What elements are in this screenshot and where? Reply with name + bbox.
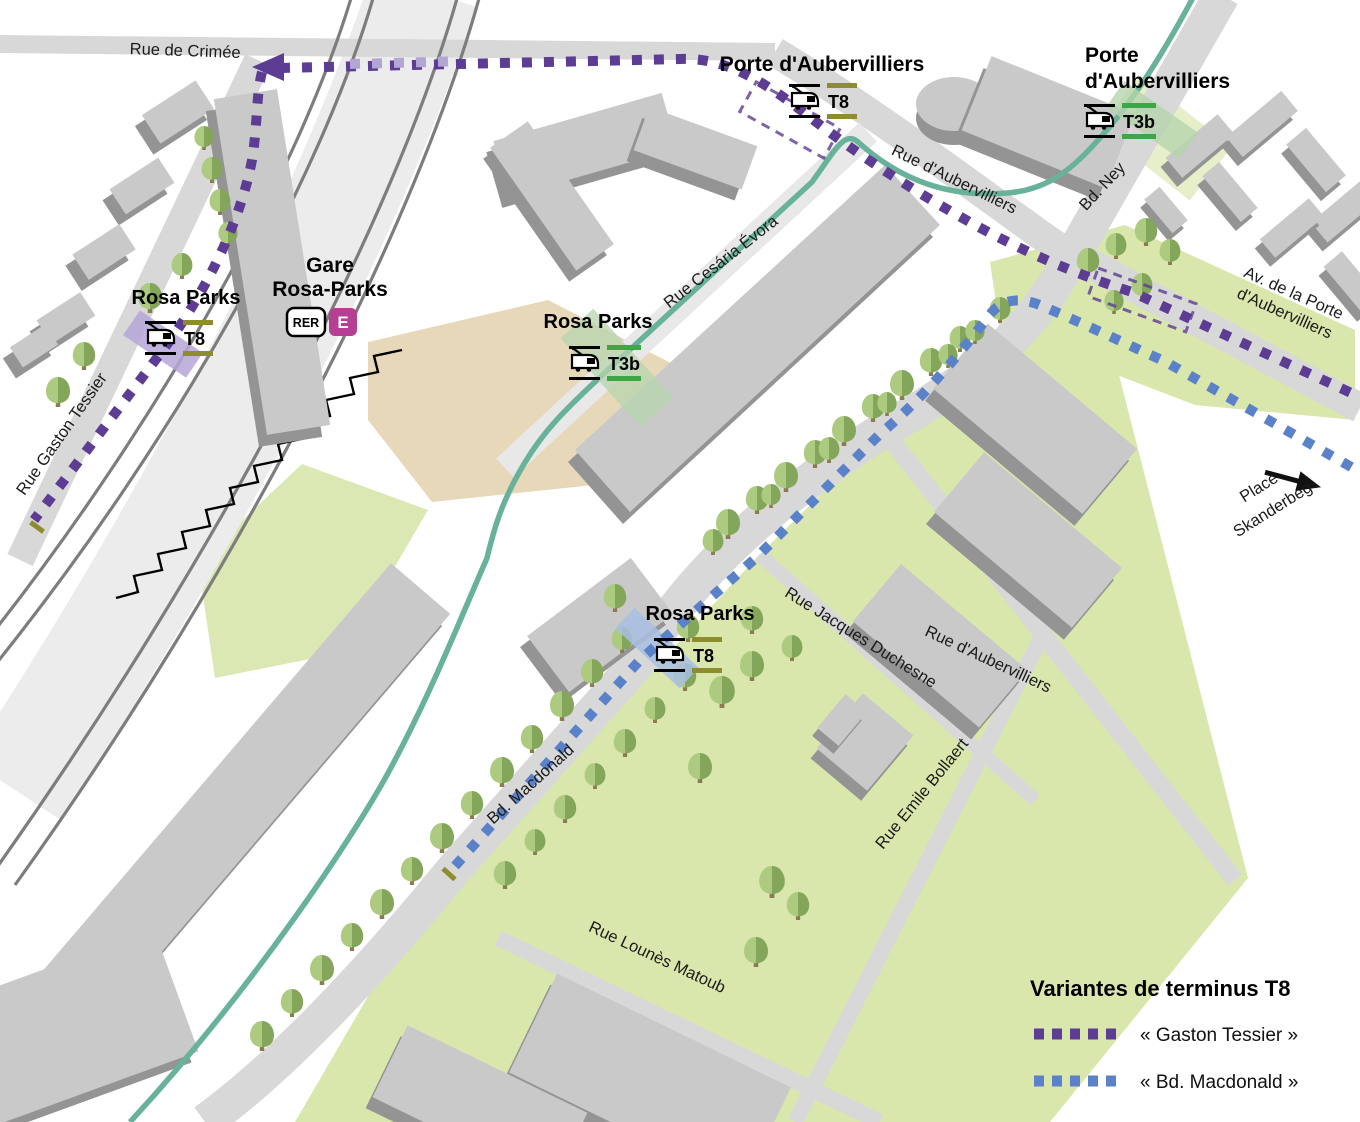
station-label-rosa-parks-t3b: Rosa Parks	[544, 311, 653, 333]
legend-title: Variantes de terminus T8	[1030, 976, 1290, 1001]
t8-line-bar	[183, 320, 213, 325]
station-label-rosa-parks-tessier: Rosa Parks	[132, 287, 241, 309]
t8-badge: T8	[828, 92, 849, 112]
t3b-badge: T3b	[608, 354, 640, 374]
legend-label-bd-macdonald: « Bd. Macdonald »	[1140, 1072, 1298, 1093]
porte-label-line2: d'Aubervilliers	[1085, 70, 1230, 93]
t8-line-bar	[183, 351, 213, 356]
t3b-badge: T3b	[1123, 112, 1155, 132]
legend-label-gaston-tessier: « Gaston Tessier »	[1140, 1025, 1298, 1046]
t8-line-bar	[692, 637, 722, 642]
station-label-porte-daubervilliers-t8: Porte d'Aubervilliers	[720, 53, 925, 76]
t8-badge: T8	[693, 646, 714, 666]
map-canvas: Rue de Crimée Rue Gaston Tessier Rue Ces…	[0, 0, 1360, 1122]
t3b-line-bar	[607, 376, 641, 381]
t8-line-bar	[692, 668, 722, 673]
rer-badge-label: RER	[293, 316, 319, 330]
t3b-line-bar	[1122, 134, 1156, 139]
rer-e-badge-label: E	[337, 313, 348, 332]
transit-map: Rue de Crimée Rue Gaston Tessier Rue Ces…	[0, 0, 1360, 1122]
t3b-line-bar	[607, 345, 641, 350]
t8-line-bar	[827, 83, 857, 88]
station-label-rosa-parks-macdonald: Rosa Parks	[646, 603, 755, 625]
gare-label-line1: Gare	[306, 254, 354, 277]
gare-label-line2: Rosa-Parks	[272, 278, 388, 301]
t3b-line-bar	[1122, 103, 1156, 108]
t8-badge: T8	[184, 329, 205, 349]
porte-label-line1: Porte	[1085, 44, 1139, 67]
t8-line-bar	[827, 114, 857, 119]
street-rue-de-crimee	[0, 44, 775, 52]
